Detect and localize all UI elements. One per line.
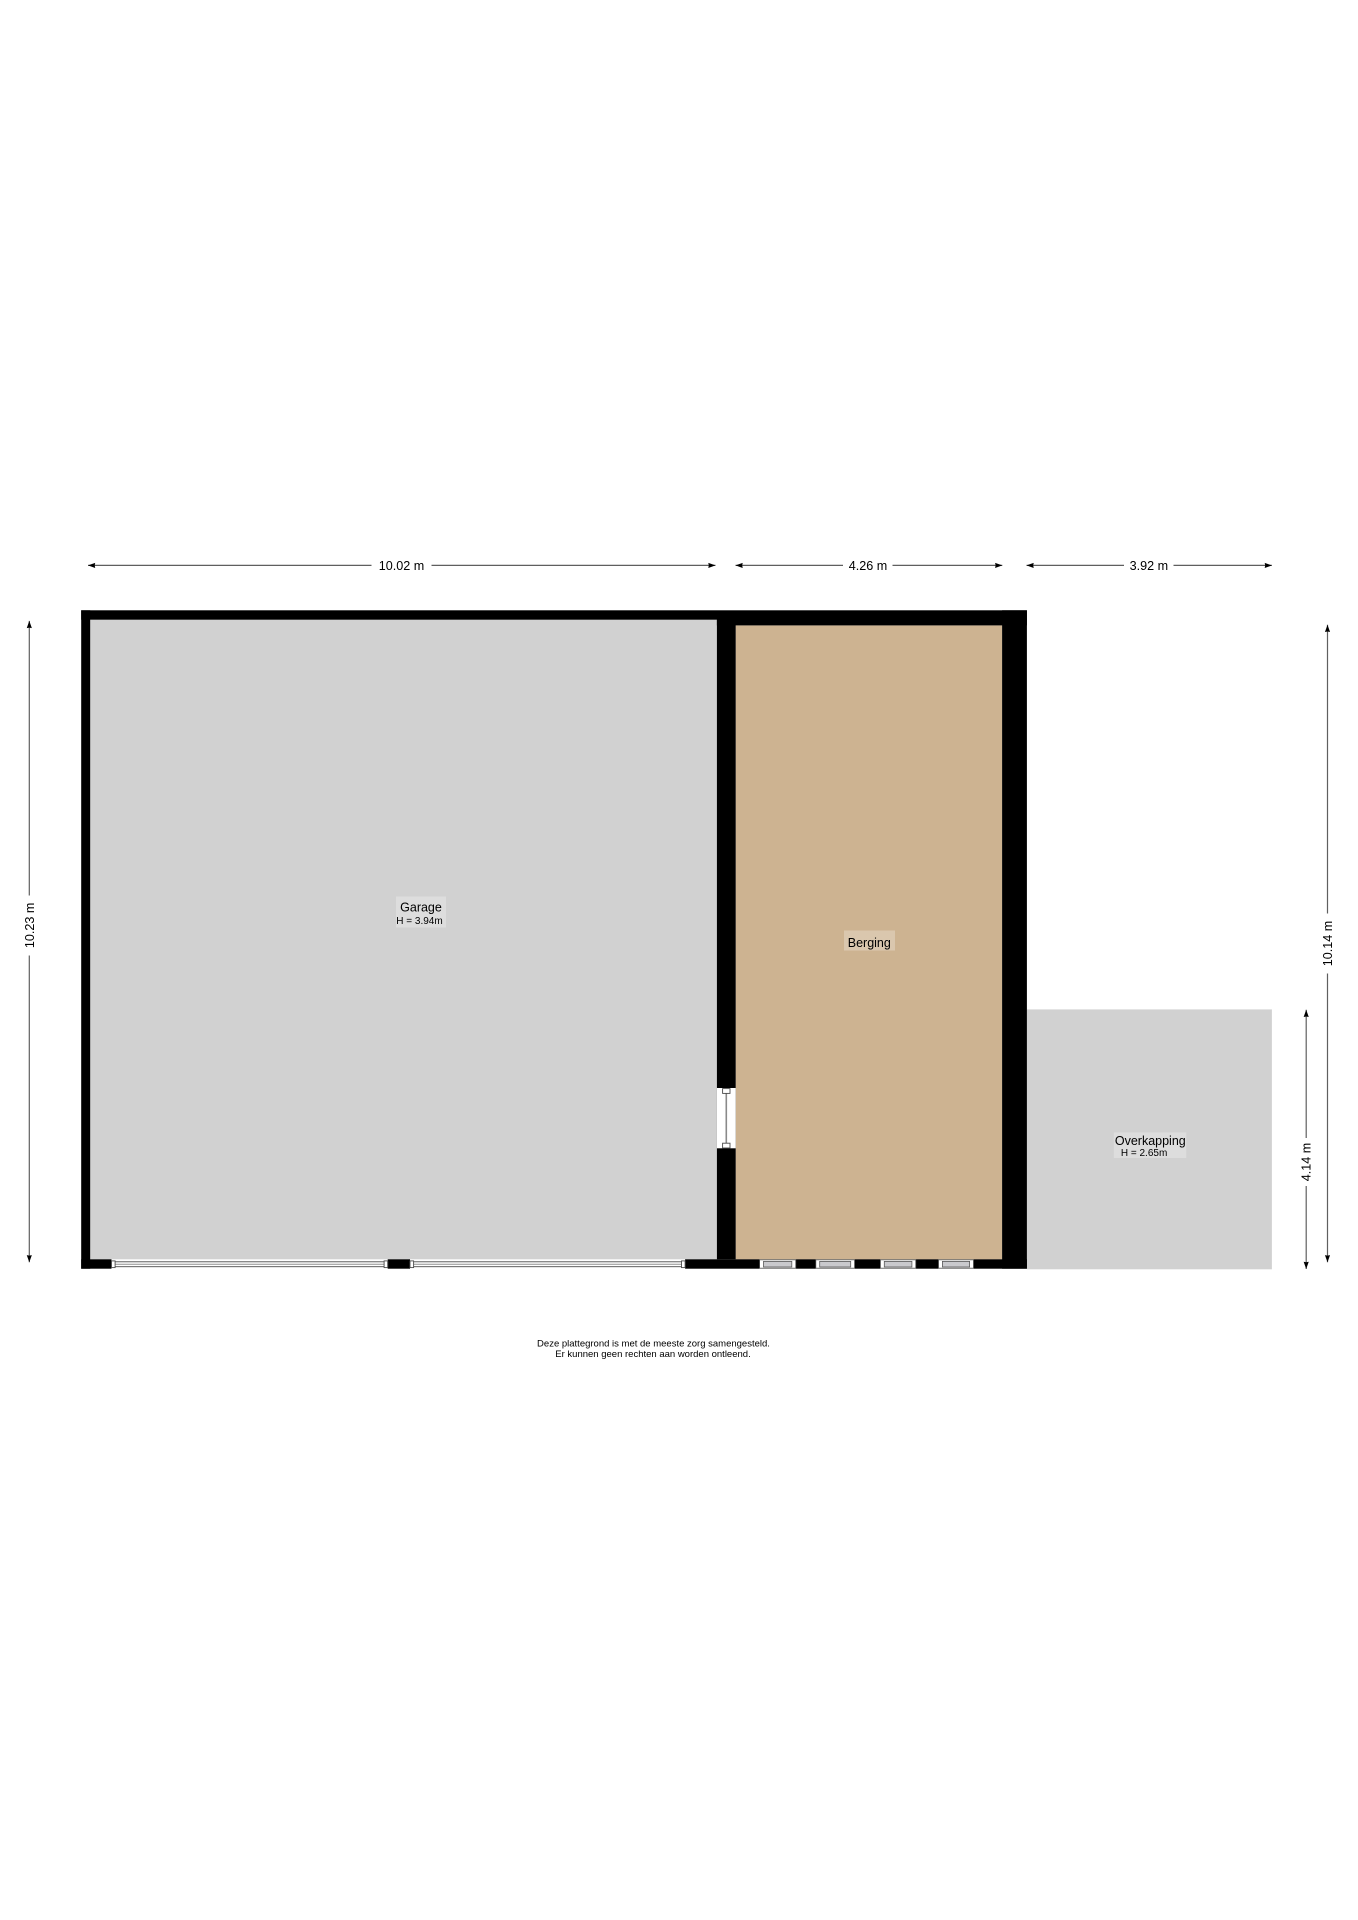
svg-text:Garage: Garage [400, 900, 442, 914]
svg-text:H = 3.94m: H = 3.94m [396, 916, 442, 927]
svg-text:H = 2.65m: H = 2.65m [1121, 1148, 1167, 1159]
svg-text:Overkapping: Overkapping [1115, 1134, 1186, 1148]
svg-text:10.02 m: 10.02 m [379, 559, 425, 573]
svg-text:4.14 m: 4.14 m [1300, 1143, 1314, 1182]
svg-text:4.26 m: 4.26 m [849, 559, 888, 573]
svg-text:10.23 m: 10.23 m [23, 903, 37, 949]
svg-text:10.14 m: 10.14 m [1321, 921, 1335, 967]
svg-text:Er kunnen geen rechten aan wor: Er kunnen geen rechten aan worden ontlee… [555, 1349, 750, 1360]
svg-text:Deze plattegrond is met de mee: Deze plattegrond is met de meeste zorg s… [537, 1339, 770, 1350]
svg-text:3.92 m: 3.92 m [1130, 559, 1169, 573]
svg-text:Berging: Berging [848, 936, 891, 950]
